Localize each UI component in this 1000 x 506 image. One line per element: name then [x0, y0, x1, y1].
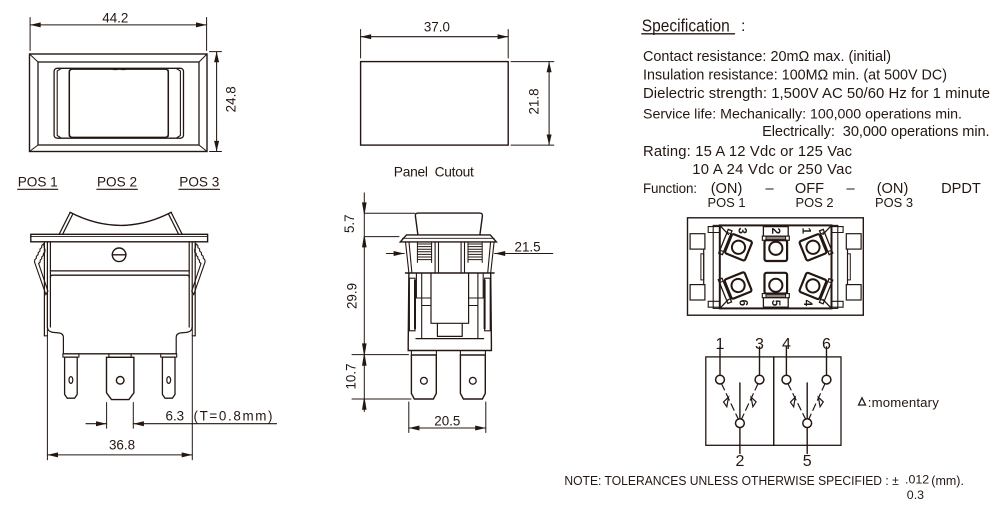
- svg-text:Service life: Mechanically: 10: Service life: Mechanically: 100,000 oper…: [643, 106, 962, 122]
- svg-text:–: –: [846, 181, 855, 197]
- svg-text:5: 5: [803, 453, 812, 470]
- svg-text:0.3: 0.3: [907, 488, 924, 502]
- svg-text:POS 2: POS 2: [796, 195, 834, 210]
- svg-text:–: –: [765, 181, 774, 197]
- svg-text:(T=0.8mm): (T=0.8mm): [194, 409, 273, 424]
- svg-text:POS 3: POS 3: [179, 175, 219, 190]
- svg-text:POS 2: POS 2: [97, 175, 137, 190]
- svg-text:24.8: 24.8: [224, 86, 239, 112]
- svg-text:NOTE: TOLERANCES UNLESS OTHERW: NOTE: TOLERANCES UNLESS OTHERWISE SPECIF…: [564, 474, 899, 488]
- svg-text:Specification: Specification: [642, 15, 730, 35]
- svg-text:29.9: 29.9: [344, 283, 359, 309]
- svg-text:2: 2: [735, 453, 744, 470]
- svg-text:20.5: 20.5: [434, 413, 460, 428]
- svg-text:1: 1: [800, 227, 812, 234]
- svg-text:37.0: 37.0: [424, 19, 450, 34]
- svg-text:Contact resistance: 20mΩ max.: Contact resistance: 20mΩ max. (initial): [643, 49, 891, 65]
- svg-text:Function:: Function:: [643, 181, 697, 196]
- svg-text:10.7: 10.7: [344, 363, 359, 389]
- svg-text:Panel Cutout: Panel Cutout: [394, 164, 474, 179]
- svg-text:4: 4: [801, 300, 813, 307]
- svg-text:POS 3: POS 3: [875, 195, 913, 210]
- svg-text:21.5: 21.5: [515, 239, 541, 254]
- svg-text:5: 5: [769, 300, 781, 307]
- svg-text:6.3: 6.3: [166, 409, 185, 424]
- svg-text:2: 2: [769, 228, 781, 234]
- svg-text:21.8: 21.8: [527, 88, 542, 114]
- svg-text:6: 6: [737, 300, 749, 306]
- svg-text:3: 3: [736, 227, 748, 233]
- svg-text:DPDT: DPDT: [941, 181, 981, 197]
- svg-text::momentary: :momentary: [868, 395, 939, 410]
- svg-text:10 A 24 Vdc or 250 Vac: 10 A 24 Vdc or 250 Vac: [692, 162, 852, 178]
- svg-text:5.7: 5.7: [342, 214, 357, 233]
- svg-text:Dielectric strength: 1,500V AC: Dielectric strength: 1,500V AC 50/60 Hz …: [643, 86, 990, 102]
- svg-text:36.8: 36.8: [109, 437, 135, 452]
- svg-text:44.2: 44.2: [102, 11, 128, 26]
- svg-text::: :: [741, 18, 745, 35]
- svg-text:Rating: 15 A 12 Vdc or 125 Vac: Rating: 15 A 12 Vdc or 125 Vac: [643, 144, 853, 160]
- svg-text:POS 1: POS 1: [708, 195, 746, 210]
- svg-text:(mm).: (mm).: [931, 474, 964, 488]
- svg-text:.012: .012: [905, 472, 929, 486]
- svg-text:Insulation resistance: 100MΩ m: Insulation resistance: 100MΩ min. (at 50…: [643, 67, 947, 83]
- svg-text:POS 1: POS 1: [18, 175, 58, 190]
- svg-text:Electrically: 30,000 operatio: Electrically: 30,000 operations min.: [762, 124, 990, 140]
